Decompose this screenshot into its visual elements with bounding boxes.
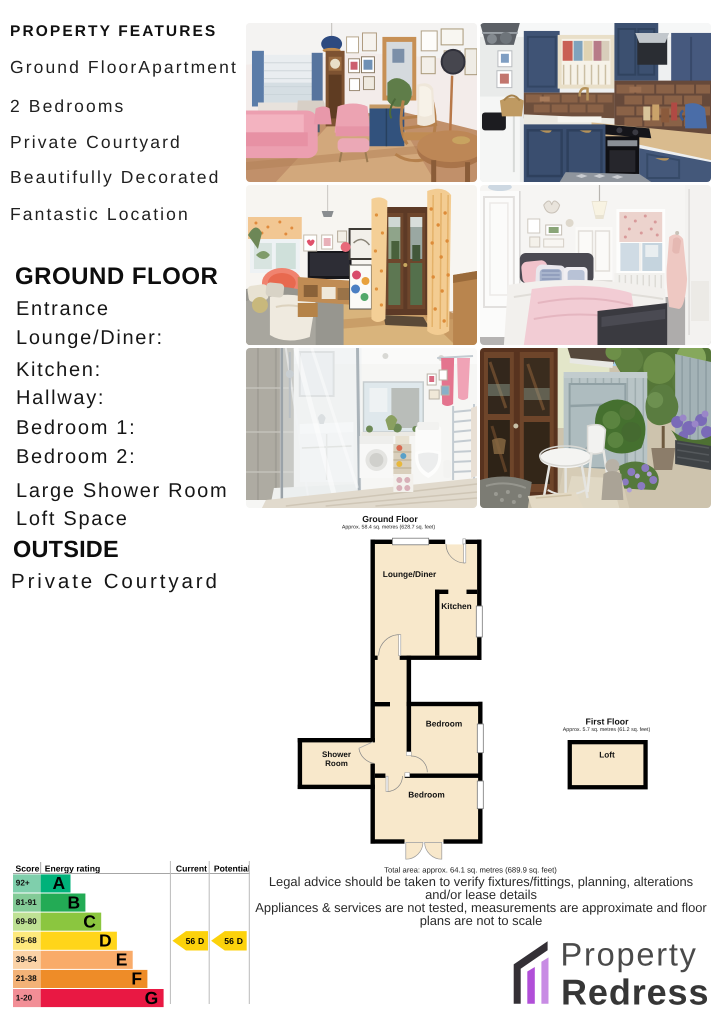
svg-text:56: 56 — [224, 936, 234, 946]
svg-text:A: A — [53, 873, 66, 893]
svg-text:C: C — [83, 911, 96, 931]
svg-text:Ground Floor: Ground Floor — [362, 514, 418, 524]
svg-text:69-80: 69-80 — [16, 917, 37, 926]
svg-text:21-38: 21-38 — [16, 974, 37, 983]
svg-text:56: 56 — [186, 936, 196, 946]
svg-text:D: D — [99, 931, 112, 951]
svg-text:Potential: Potential — [214, 863, 250, 873]
svg-text:Bedroom: Bedroom — [426, 718, 462, 728]
svg-text:Lounge/Diner: Lounge/Diner — [383, 569, 437, 579]
svg-text:55-68: 55-68 — [16, 936, 37, 945]
svg-text:Bedroom: Bedroom — [408, 789, 444, 799]
svg-text:Loft: Loft — [599, 751, 615, 760]
svg-text:D: D — [237, 936, 243, 946]
svg-text:Shower: Shower — [322, 750, 351, 759]
svg-text:B: B — [67, 892, 80, 912]
svg-text:E: E — [116, 950, 128, 970]
svg-text:Property: Property — [561, 937, 698, 973]
svg-text:Redress: Redress — [561, 972, 709, 1013]
svg-text:Total area: approx. 64.1 sq. m: Total area: approx. 64.1 sq. metres (689… — [384, 866, 557, 875]
svg-text:F: F — [131, 969, 142, 989]
svg-text:Score: Score — [16, 863, 40, 873]
svg-text:Kitchen: Kitchen — [441, 601, 471, 611]
svg-text:Approx. 58.4 sq. metres (628.7: Approx. 58.4 sq. metres (628.7 sq. feet) — [342, 525, 436, 531]
svg-text:81-91: 81-91 — [16, 898, 37, 907]
svg-text:Room: Room — [325, 759, 348, 768]
svg-text:Current: Current — [176, 863, 207, 873]
svg-text:39-54: 39-54 — [16, 955, 37, 964]
svg-text:G: G — [145, 988, 159, 1008]
svg-text:92+: 92+ — [16, 879, 30, 888]
svg-text:D: D — [198, 936, 204, 946]
svg-text:Approx. 5.7 sq. metres (61.2 s: Approx. 5.7 sq. metres (61.2 sq. feet) — [563, 727, 651, 733]
svg-text:1-20: 1-20 — [16, 993, 33, 1002]
svg-text:First Floor: First Floor — [586, 716, 630, 726]
svg-text:Energy rating: Energy rating — [45, 863, 100, 873]
